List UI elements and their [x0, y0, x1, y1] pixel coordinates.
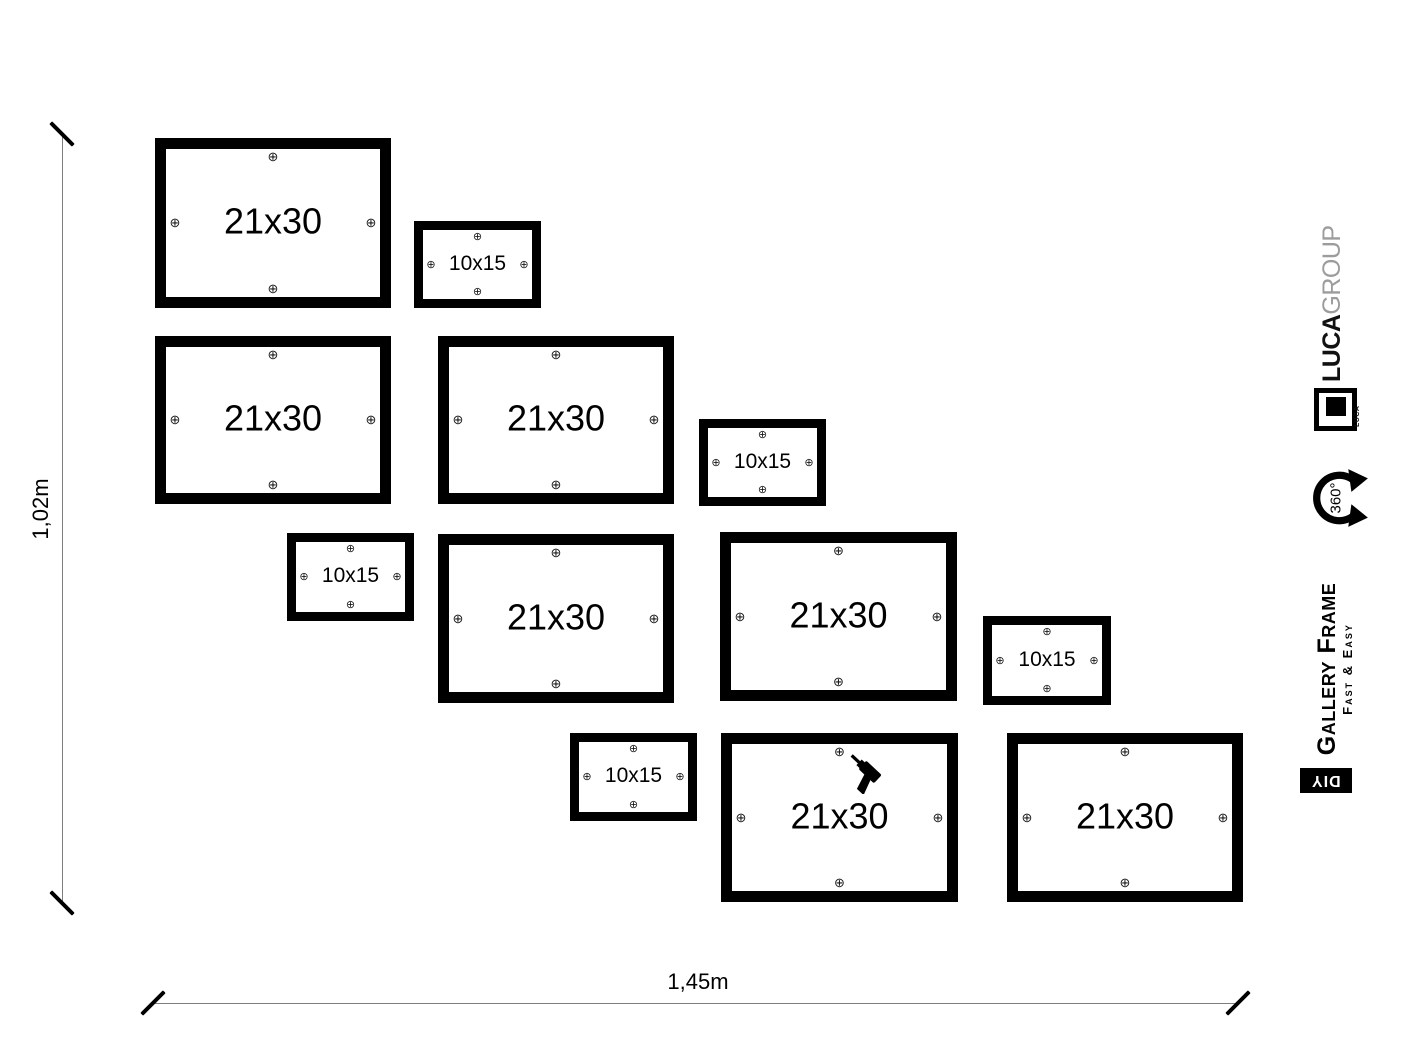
- mount-point-icon: ⊕: [549, 478, 563, 492]
- mount-point-icon: ⊕: [757, 429, 769, 441]
- mount-point-icon: ⊕: [647, 413, 661, 427]
- mount-point-icon: ⊕: [734, 811, 748, 825]
- mount-point-icon: ⊕: [298, 571, 310, 583]
- horizontal-dimension-line: [153, 1003, 1238, 1004]
- frame-size-label: 21x30: [449, 596, 663, 638]
- frame-size-label: 21x30: [166, 397, 380, 439]
- mount-point-icon: ⊕: [364, 413, 378, 427]
- mount-point-icon: ⊕: [674, 771, 686, 783]
- frame-21x30: 21x30⊕⊕⊕⊕: [438, 336, 674, 504]
- rotation-degrees-label: 360°: [1328, 482, 1345, 513]
- mount-point-icon: ⊕: [266, 478, 280, 492]
- frame-10x15: 10x15⊕⊕⊕⊕: [983, 616, 1111, 705]
- mount-point-icon: ⊕: [451, 612, 465, 626]
- frame-10x15: 10x15⊕⊕⊕⊕: [287, 533, 414, 621]
- frame-21x30: 21x30⊕⊕⊕⊕: [438, 534, 674, 703]
- brand-name: LUCA: [1318, 315, 1346, 382]
- gallery-wall-layout-diagram: 21x30⊕⊕⊕⊕10x15⊕⊕⊕⊕21x30⊕⊕⊕⊕21x30⊕⊕⊕⊕10x1…: [0, 0, 1412, 1063]
- frame-size-label: 10x15: [579, 764, 688, 788]
- mount-point-icon: ⊕: [266, 150, 280, 164]
- mount-point-icon: ⊕: [266, 348, 280, 362]
- brand-suffix: GROUP: [1318, 225, 1346, 314]
- mount-point-icon: ⊕: [1088, 655, 1100, 667]
- mount-point-icon: ⊕: [581, 771, 593, 783]
- mount-point-icon: ⊕: [549, 677, 563, 691]
- mount-point-icon: ⊕: [345, 543, 357, 555]
- mount-point-icon: ⊕: [832, 675, 846, 689]
- frame-21x30: 21x30⊕⊕⊕⊕: [155, 336, 391, 504]
- frame-size-label: 10x15: [708, 450, 817, 474]
- frame-size-label: 10x15: [296, 564, 405, 588]
- mount-point-icon: ⊕: [710, 457, 722, 469]
- mount-point-icon: ⊕: [425, 259, 437, 271]
- product-name: Gallery Frame: [1314, 576, 1340, 762]
- brand-logo-icon: LUCA: [1314, 388, 1357, 431]
- mount-point-icon: ⊕: [391, 571, 403, 583]
- mount-point-icon: ⊕: [803, 457, 815, 469]
- frame-size-label: 21x30: [732, 795, 947, 837]
- logo-small-text: LUCA: [1354, 406, 1361, 427]
- mount-point-icon: ⊕: [1118, 876, 1132, 890]
- mount-point-icon: ⊕: [518, 259, 530, 271]
- frame-size-label: 10x15: [992, 648, 1102, 672]
- mount-point-icon: ⊕: [757, 484, 769, 496]
- height-dimension-label: 1,02m: [28, 470, 54, 548]
- frame-10x15: 10x15⊕⊕⊕⊕: [414, 221, 541, 308]
- mount-point-icon: ⊕: [931, 811, 945, 825]
- frame-21x30: 21x30⊕⊕⊕⊕: [1007, 733, 1243, 902]
- frame-21x30: 21x30⊕⊕⊕⊕: [155, 138, 391, 308]
- rotate-360-icon: 360°: [1306, 465, 1372, 531]
- vertical-dimension-line: [62, 134, 63, 904]
- mount-point-icon: ⊕: [628, 799, 640, 811]
- frame-size-label: 10x15: [423, 252, 532, 276]
- mount-point-icon: ⊕: [647, 612, 661, 626]
- mount-point-icon: ⊕: [1216, 811, 1230, 825]
- product-wordmark: Gallery Frame Fast & Easy: [1314, 576, 1358, 762]
- frame-21x30: 21x30⊕⊕⊕⊕: [720, 532, 957, 701]
- mount-point-icon: ⊕: [1041, 626, 1053, 638]
- frame-size-label: 21x30: [449, 397, 663, 439]
- brand-wordmark: LUCAGROUP: [1318, 240, 1348, 382]
- product-tagline: Fast & Easy: [1341, 576, 1354, 762]
- logo-square-icon: [1326, 397, 1346, 416]
- mount-point-icon: ⊕: [1118, 745, 1132, 759]
- mount-point-icon: ⊕: [1041, 683, 1053, 695]
- frame-21x30: 21x30⊕⊕⊕⊕: [721, 733, 958, 902]
- frame-size-label: 21x30: [731, 594, 946, 636]
- mount-point-icon: ⊕: [833, 876, 847, 890]
- frame-size-label: 21x30: [1018, 795, 1232, 837]
- frame-10x15: 10x15⊕⊕⊕⊕: [699, 419, 826, 506]
- mount-point-icon: ⊕: [994, 655, 1006, 667]
- mount-point-icon: ⊕: [168, 413, 182, 427]
- mount-point-icon: ⊕: [168, 216, 182, 230]
- diy-badge: DIY: [1300, 768, 1352, 793]
- mount-point-icon: ⊕: [472, 286, 484, 298]
- mount-point-icon: ⊕: [733, 610, 747, 624]
- mount-point-icon: ⊕: [472, 231, 484, 243]
- mount-point-icon: ⊕: [628, 743, 640, 755]
- mount-point-icon: ⊕: [345, 599, 357, 611]
- diy-label: DIY: [1311, 768, 1341, 793]
- mount-point-icon: ⊕: [549, 546, 563, 560]
- width-dimension-label: 1,45m: [628, 969, 768, 995]
- mount-point-icon: ⊕: [832, 544, 846, 558]
- frame-10x15: 10x15⊕⊕⊕⊕: [570, 733, 697, 821]
- mount-point-icon: ⊕: [266, 282, 280, 296]
- mount-point-icon: ⊕: [549, 348, 563, 362]
- mount-point-icon: ⊕: [1020, 811, 1034, 825]
- drill-icon: [844, 748, 888, 794]
- frame-size-label: 21x30: [166, 200, 380, 242]
- mount-point-icon: ⊕: [364, 216, 378, 230]
- mount-point-icon: ⊕: [451, 413, 465, 427]
- mount-point-icon: ⊕: [930, 610, 944, 624]
